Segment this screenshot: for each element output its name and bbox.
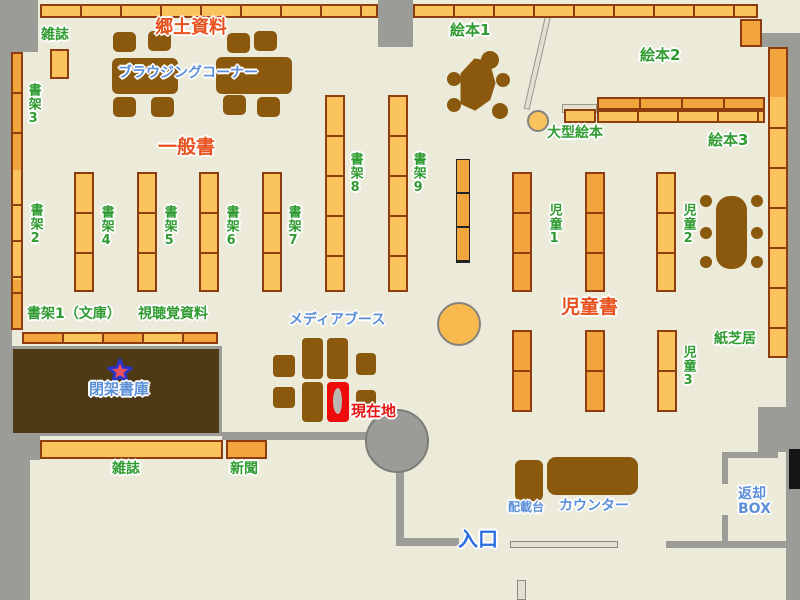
audiovisual-shelf-row	[22, 332, 218, 344]
distribution-table	[515, 460, 543, 501]
children-stool	[751, 195, 763, 207]
area-label-kamishibai: 紙芝居	[714, 332, 756, 347]
children-stool	[700, 227, 712, 239]
children-shelf-1b	[585, 172, 605, 292]
media-booth-unit	[273, 355, 295, 377]
story-stool	[447, 72, 461, 86]
shelf-top-row-left	[40, 4, 378, 18]
media-booth-unit	[302, 382, 323, 422]
label-return-box-line1: 返却	[738, 487, 771, 502]
browsing-chair	[113, 32, 136, 52]
media-booth-unit	[273, 387, 295, 408]
entrance-post	[517, 580, 526, 600]
shelf-top-right-end	[740, 19, 762, 47]
area-label-magazine-bottom: 雑誌	[112, 462, 140, 477]
area-label-media-booth: メディアブース	[289, 313, 385, 328]
entrance-rail-horizontal	[396, 538, 459, 546]
top-center-pillar	[378, 0, 413, 47]
entrance-threshold	[510, 541, 618, 548]
media-booth-unit	[356, 353, 376, 375]
picture-book-row-bottom	[597, 110, 765, 123]
stacks-to-pillar-wall	[222, 432, 368, 440]
browsing-chair	[113, 97, 136, 117]
shelf-label-5: 書架5	[162, 205, 176, 249]
label-counter: カウンター	[559, 499, 629, 514]
large-picture-book-shelf	[564, 109, 596, 123]
children-shelf-2	[656, 172, 676, 292]
library-floor-map: 郷土資料 雑誌 書架3 書架2 ブラウジングコーナー 一般書 書架4 書架5 書…	[0, 0, 800, 600]
children-shelf-3	[657, 330, 677, 412]
browsing-chair	[257, 97, 280, 117]
story-stool	[496, 73, 510, 87]
round-table-small	[527, 110, 549, 132]
area-label-picture-book-1: 絵本1	[450, 23, 490, 39]
right-wall-step	[758, 407, 787, 452]
diagonal-partition	[524, 16, 551, 110]
shelf-wall-column-right-dark-part	[770, 49, 786, 97]
bookshelf-7	[262, 172, 282, 292]
browsing-chair	[254, 31, 277, 51]
area-label-large-picture-book: 大型絵本	[547, 126, 603, 141]
top-left-wall-corner	[0, 0, 38, 52]
bookshelf-5	[137, 172, 157, 292]
shelf-newspaper	[226, 440, 267, 459]
return-slot-opening	[789, 449, 800, 489]
current-location-label: 現在地	[351, 404, 396, 420]
shelf-top-row-right	[413, 4, 758, 18]
picture-book-row-top	[597, 97, 765, 110]
entrance-rail-vertical	[396, 465, 404, 543]
area-label-closed-stacks: 閉架書庫	[89, 382, 149, 398]
browsing-chair	[223, 95, 246, 115]
shelf-label-3: 書架3	[26, 83, 40, 127]
area-label-local-materials: 郷土資料	[155, 19, 227, 38]
children-shelf-1a	[512, 172, 532, 292]
shelf-label-8: 書架8	[348, 152, 362, 196]
area-label-picture-book-3: 絵本3	[708, 133, 748, 149]
bottom-wall	[666, 541, 800, 548]
children-stool	[751, 256, 763, 268]
small-center-shelf	[456, 159, 470, 263]
current-location-booth	[327, 382, 349, 422]
return-box-wall-upper	[722, 452, 728, 484]
area-label-picture-book-2: 絵本2	[640, 48, 680, 64]
return-box-wall-top	[722, 452, 778, 458]
children-stool	[700, 195, 712, 207]
shelf-wall-column-left-light-part	[13, 170, 21, 280]
area-label-general-books: 一般書	[158, 138, 215, 158]
bookshelf-9	[388, 95, 408, 292]
shelf-magazine-top	[50, 49, 69, 79]
area-label-newspaper: 新聞	[230, 462, 258, 477]
label-return-box-line2: BOX	[738, 502, 771, 517]
shelf-label-children-1: 児童1	[547, 203, 561, 247]
children-table	[716, 196, 747, 269]
shelf-wall-column-right	[768, 47, 788, 358]
shelf-label-4: 書架4	[99, 205, 113, 249]
shelf-label-2: 書架2	[28, 203, 42, 247]
area-label-audiovisual: 視聴覚資料	[138, 307, 208, 322]
shelf-label-6: 書架6	[224, 205, 238, 249]
story-stool	[447, 98, 461, 112]
browsing-chair	[227, 33, 250, 53]
shelf-magazine-bottom	[40, 440, 223, 459]
children-stool	[751, 227, 763, 239]
shelf-label-7: 書架7	[286, 205, 300, 249]
children-stool	[700, 256, 712, 268]
shelf-label-children-2: 児童2	[681, 203, 695, 247]
service-counter	[547, 457, 638, 495]
seat-icon	[333, 388, 342, 414]
children-shelf-lower-1	[512, 330, 532, 412]
media-booth-unit	[302, 338, 323, 379]
shelf-label-children-3: 児童3	[681, 345, 695, 389]
label-return-box: 返却 BOX	[738, 487, 771, 516]
shelf-label-1-bunko: 書架1（文庫）	[27, 307, 121, 322]
story-stool	[481, 51, 499, 69]
bookshelf-4	[74, 172, 94, 292]
bottom-left-wall	[0, 450, 30, 600]
children-shelf-lower-2	[585, 330, 605, 412]
media-booth-unit	[327, 338, 348, 379]
bookshelf-6	[199, 172, 219, 292]
shelf-wall-column-left	[11, 52, 23, 330]
bookshelf-8	[325, 95, 345, 292]
browsing-chair	[151, 97, 174, 117]
round-table-large	[437, 302, 481, 346]
story-stool	[492, 103, 508, 119]
area-label-browsing-corner: ブラウジングコーナー	[118, 66, 258, 81]
area-label-children-books: 児童書	[561, 298, 618, 318]
shelf-label-9: 書架9	[411, 152, 425, 196]
label-distribution-table: 配載台	[508, 501, 544, 514]
label-entrance: 入口	[458, 529, 498, 550]
area-label-magazine-top: 雑誌	[41, 28, 69, 43]
right-wall	[786, 33, 800, 600]
